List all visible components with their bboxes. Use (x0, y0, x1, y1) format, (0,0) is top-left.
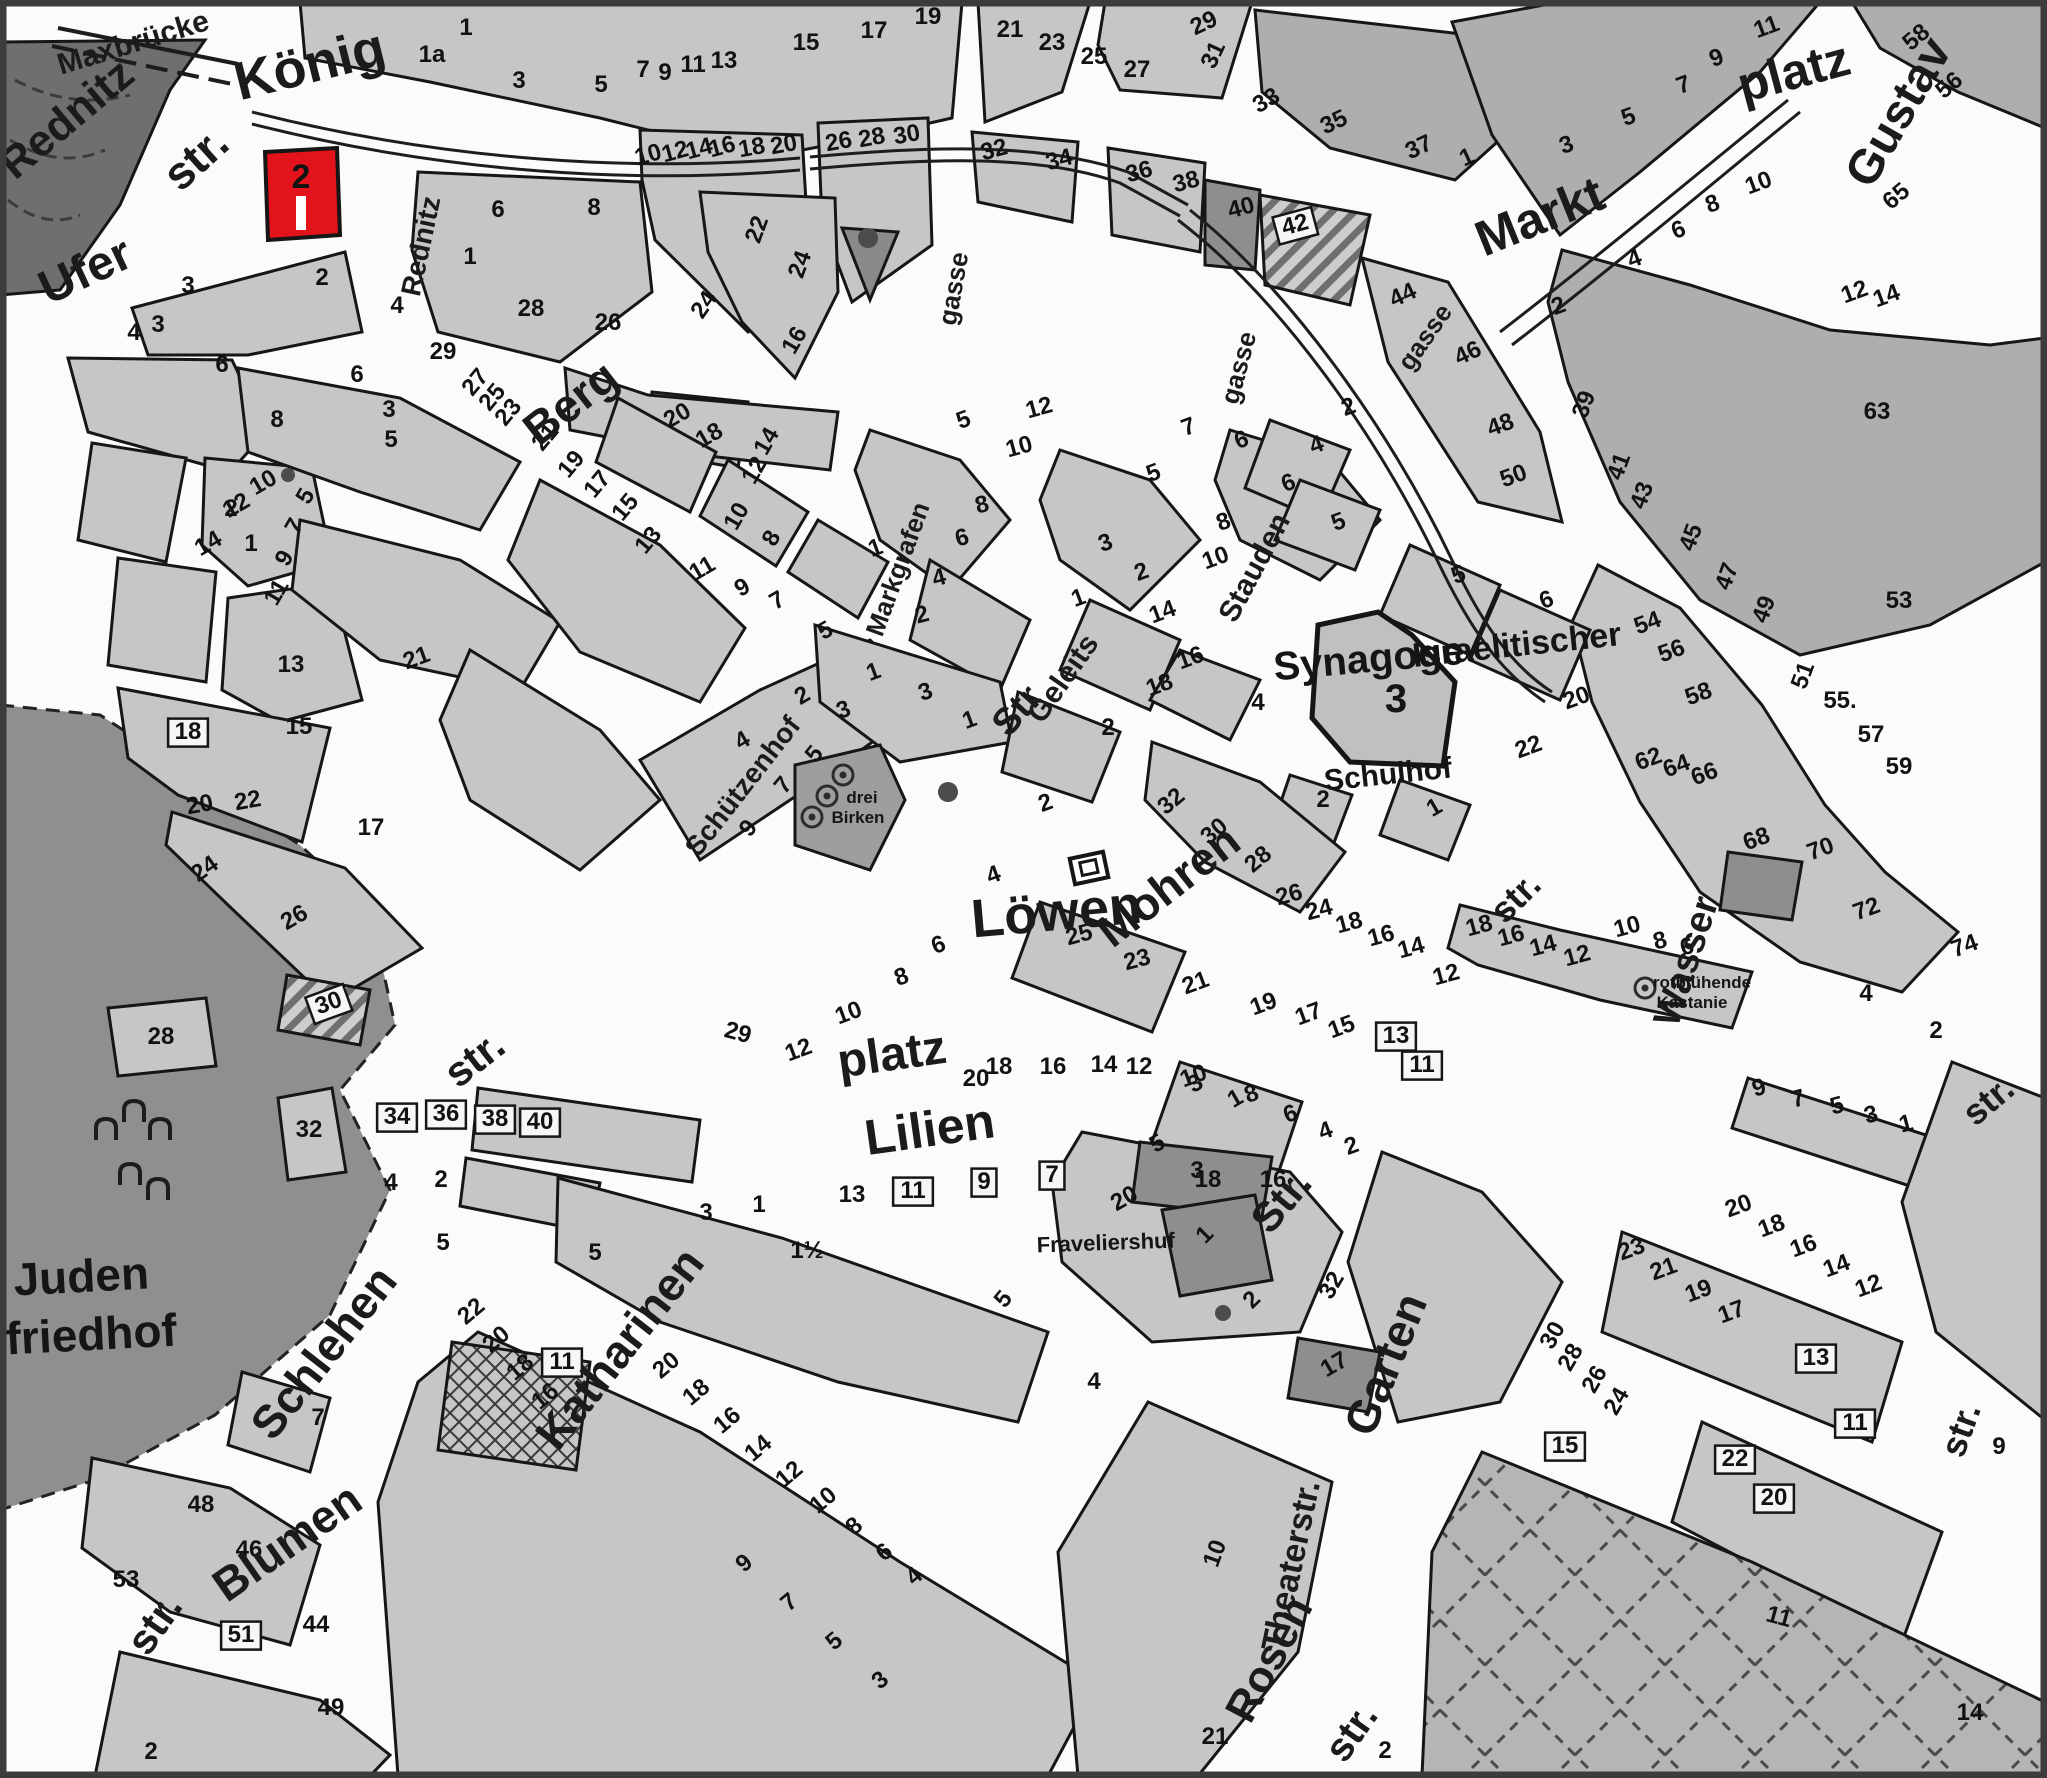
city-map: 2 11a35791113151719212325272931333537110… (0, 0, 2047, 1778)
house-number: 1½ (790, 1237, 823, 1264)
house-number: 18 (736, 132, 767, 163)
house-number: 15 (1552, 1432, 1579, 1459)
house-number: 59 (1886, 753, 1913, 780)
highlighted-building[interactable]: 2 (265, 148, 340, 240)
house-number: 3 (382, 396, 395, 423)
house-number: 18 (175, 718, 202, 745)
house-number: 3 (1190, 1157, 1203, 1184)
place-label: Birken (832, 808, 885, 827)
house-number: 2 (1101, 714, 1114, 741)
house-number: 12 (1126, 1053, 1153, 1080)
house-number: 11 (900, 1177, 925, 1204)
house-number: 28 (518, 295, 545, 322)
city-map-page: 2 11a35791113151719212325272931333537110… (0, 0, 2047, 1778)
house-number: 20 (184, 789, 215, 820)
house-number: 13 (839, 1181, 866, 1208)
house-number: 55. (1823, 687, 1856, 714)
house-number: 40 (527, 1108, 554, 1135)
house-number: 5 (594, 71, 607, 98)
house-number: 38 (482, 1105, 509, 1132)
place-label: Fraveliershuf (1036, 1228, 1176, 1258)
house-number: 4 (384, 1169, 398, 1196)
house-number: 6 (491, 196, 504, 223)
house-number: 28 (148, 1023, 175, 1050)
house-number: 5 (436, 1229, 449, 1256)
house-number: 23 (1039, 29, 1066, 56)
house-number: 32 (296, 1116, 323, 1143)
house-number: 19 (915, 3, 942, 30)
house-number: 3 (151, 311, 164, 338)
house-number: 13 (278, 651, 305, 678)
house-number: 29 (430, 338, 457, 365)
house-number: 7 (1045, 1161, 1058, 1188)
house-number: 1 (463, 243, 476, 270)
house-number: 1 (244, 530, 257, 557)
house-number: 3 (181, 272, 194, 299)
house-number: 2 (1929, 1017, 1942, 1044)
house-number: 11 (1409, 1051, 1434, 1078)
house-number: 4 (1087, 1368, 1101, 1395)
house-number: 7 (311, 1404, 324, 1431)
house-number: 11 (1842, 1409, 1867, 1436)
house-number: 8 (270, 406, 283, 433)
house-number: 15 (793, 29, 820, 56)
house-number: 16 (1040, 1053, 1067, 1080)
house-number: 6 (215, 351, 228, 378)
house-number: 1 (459, 14, 472, 41)
house-number: 2 (315, 264, 328, 291)
house-number: 7 (636, 56, 649, 83)
house-number: 6 (350, 361, 363, 388)
house-number: 21 (997, 16, 1024, 43)
house-number: 53 (1886, 587, 1913, 614)
house-number: 13 (711, 47, 738, 74)
house-number: 36 (433, 1100, 460, 1127)
house-number: 25 (1081, 43, 1108, 70)
house-number: 1a (419, 41, 446, 68)
house-number: 21 (1202, 1723, 1229, 1750)
place-label: drei (846, 788, 877, 807)
house-number: 17 (358, 814, 385, 841)
house-number: 34 (384, 1103, 411, 1130)
house-number: 53 (113, 1566, 140, 1593)
place-label: rotblühende (1653, 973, 1751, 992)
house-number: 9 (658, 59, 671, 86)
house-number: 3 (699, 1199, 712, 1226)
house-number: 27 (1124, 56, 1151, 83)
house-number: 2 (144, 1738, 157, 1765)
house-number: 63 (1864, 398, 1891, 425)
house-number: 30 (891, 119, 922, 150)
house-number: 17 (861, 17, 888, 44)
house-number: 20 (768, 129, 799, 160)
house-number: 28 (856, 122, 887, 153)
house-number: 9 (1992, 1433, 2005, 1460)
place-label: Kastanie (1657, 993, 1728, 1012)
house-number: 15 (286, 713, 313, 740)
house-number: 11 (680, 51, 705, 78)
house-number: 2 (434, 1166, 447, 1193)
house-number: 13 (1803, 1344, 1830, 1371)
house-number: 22 (1722, 1445, 1749, 1472)
house-number: 4 (390, 292, 404, 319)
house-number: 9 (977, 1168, 990, 1195)
house-number: 4 (1859, 980, 1873, 1007)
house-number: 18 (986, 1053, 1013, 1080)
house-number: 14 (1957, 1699, 1984, 1726)
house-number: 26 (823, 126, 854, 157)
house-number: 5 (588, 1239, 601, 1266)
house-number: 49 (318, 1694, 345, 1721)
house-number: 57 (1858, 721, 1885, 748)
house-number: 1 (752, 1191, 765, 1218)
house-number: 4 (127, 319, 141, 346)
house-number: 26 (595, 309, 622, 336)
house-number: 22 (232, 785, 263, 816)
house-number: 2 (1378, 1737, 1391, 1764)
house-number: 48 (188, 1491, 215, 1518)
place-label: Juden (12, 1247, 150, 1306)
house-number: 4 (1251, 689, 1265, 716)
house-number: 20 (963, 1065, 990, 1092)
house-number: 44 (303, 1611, 330, 1638)
highlighted-building-number: 2 (292, 158, 311, 196)
house-number: 3 (512, 67, 525, 94)
house-number: 20 (1761, 1484, 1788, 1511)
house-number: 8 (587, 194, 600, 221)
house-number: 14 (1091, 1051, 1118, 1078)
house-number: 13 (1383, 1022, 1410, 1049)
house-number: 51 (228, 1621, 255, 1648)
place-label: 3 (1385, 677, 1407, 721)
house-number: 5 (384, 426, 397, 453)
place-label: friedhof (4, 1304, 178, 1365)
